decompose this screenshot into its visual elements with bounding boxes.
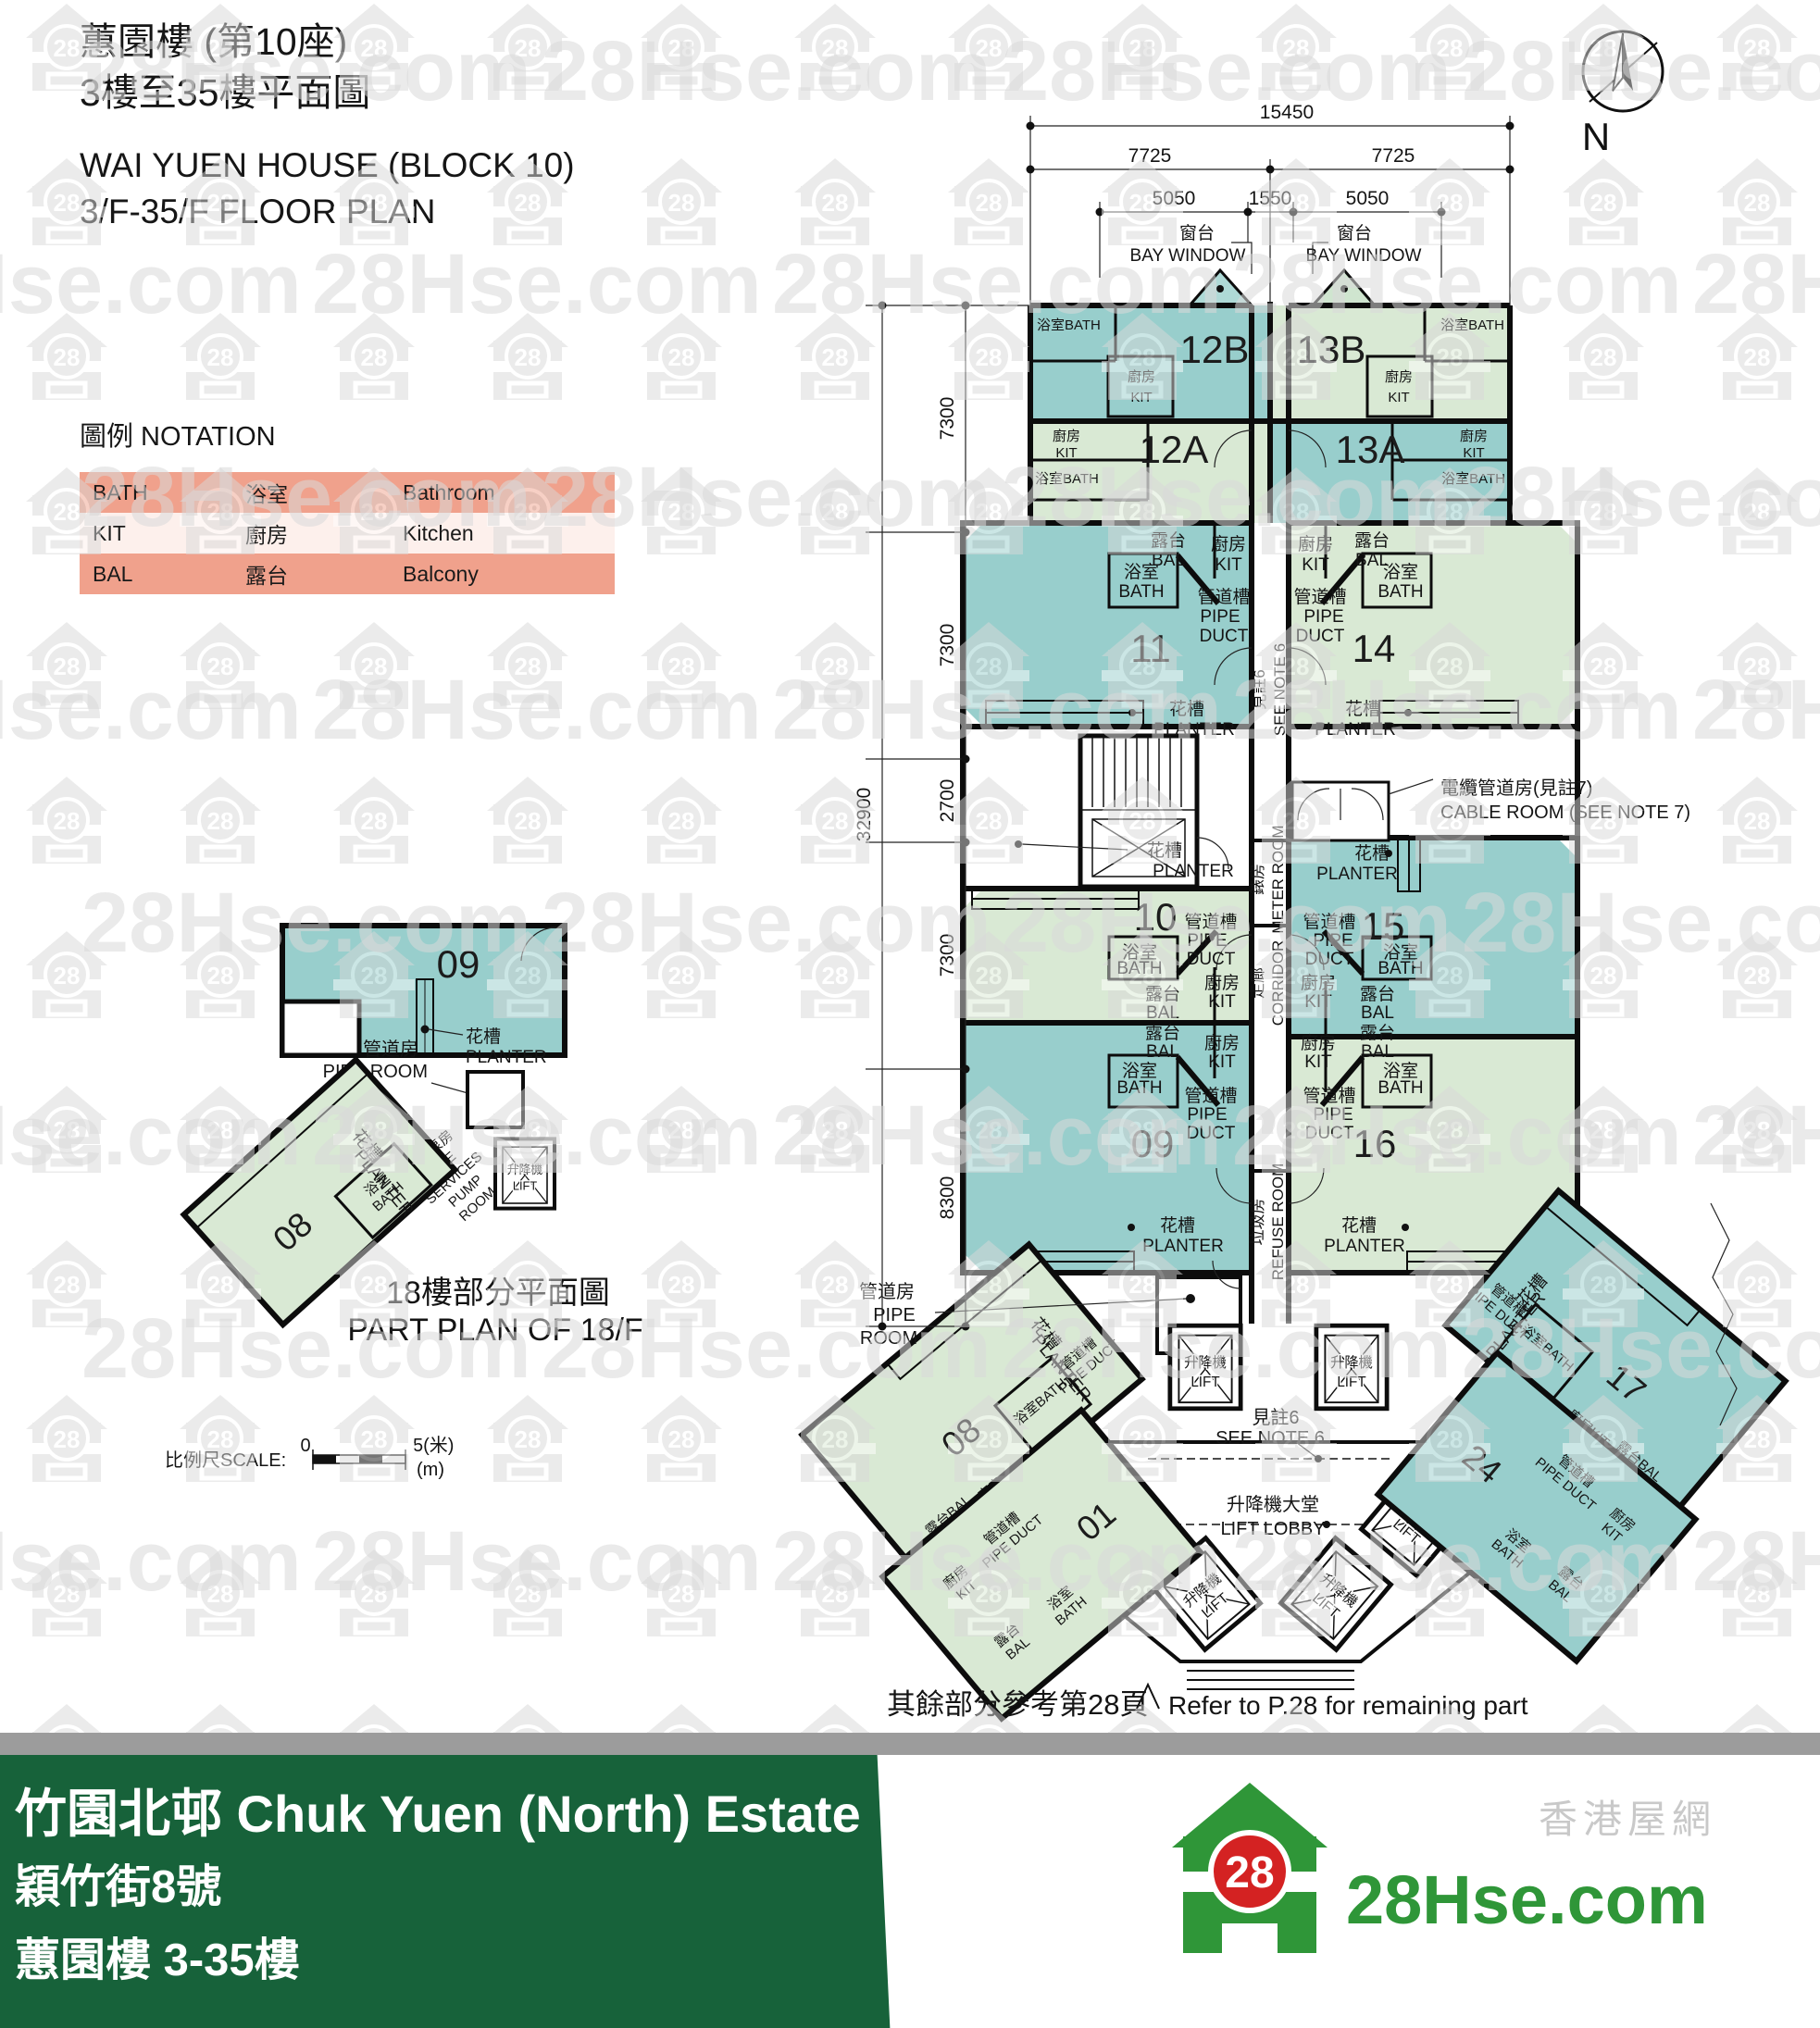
corridor-label: 走廊 — [1249, 967, 1266, 999]
pipe-duct-label: 管道槽 — [1303, 1086, 1355, 1106]
unit-11-label: 11 — [1130, 627, 1171, 670]
unit-12b-label: 12B — [1180, 328, 1250, 371]
notation-zh: 露台 — [245, 558, 403, 590]
notation-code: BATH — [93, 480, 245, 505]
scale-five: 5(米) — [413, 1435, 454, 1456]
kit-label: KIT — [1130, 390, 1152, 405]
unit-10-label: 10 — [1134, 895, 1178, 939]
subtitle-zh: 3樓至35樓平面圖 — [80, 68, 575, 118]
bath-label: 浴室BATH — [1037, 317, 1101, 333]
kit-label: KIT — [1215, 555, 1242, 575]
kit-label: KIT — [1304, 1052, 1332, 1072]
bay-window-label: BAY WINDOW — [1306, 246, 1422, 266]
kit-label: 廚房 — [1128, 368, 1155, 385]
pipe-duct-label: DUCT — [1305, 1124, 1354, 1143]
bath-label: 浴室BATH — [1440, 317, 1504, 333]
planter-label: PLANTER — [1142, 1237, 1224, 1256]
pipe-duct-label: PIPE — [1313, 931, 1353, 951]
notation-row-kit: KIT 廚房 Kitchen — [80, 513, 615, 554]
bath-label: BATH — [1377, 1078, 1423, 1098]
brand-logo: 28 28Hse.com 香港屋網 — [1168, 1779, 1798, 2001]
bal-label: BAL — [1361, 1003, 1394, 1023]
bay-window-labels: 窗台 BAY WINDOW 窗台 BAY WINDOW — [1130, 223, 1422, 274]
planter-label: 花槽 — [1345, 699, 1380, 719]
dim-7300: 7300 — [937, 624, 958, 667]
cable-room-label: 電纜管道房(見註7) — [1440, 778, 1592, 799]
notation-en: Balcony — [403, 562, 615, 587]
scale-label: 比例尺SCALE: — [165, 1449, 286, 1471]
bath-label: 浴室BATH — [1035, 471, 1099, 487]
bal-label: 露台 — [1145, 984, 1180, 1004]
dim-5050: 5050 — [1153, 188, 1196, 209]
refuse-room-label: REFUSE ROOM — [1269, 1163, 1287, 1281]
notation-zh: 浴室 — [245, 477, 403, 508]
kit-label: 廚房 — [1301, 972, 1336, 993]
footer-divider — [0, 1733, 1820, 1755]
pipe-duct-label: DUCT — [1187, 950, 1236, 969]
part-unit-09-label: 09 — [437, 942, 480, 986]
pipe-duct-label: DUCT — [1296, 627, 1345, 646]
pipe-duct-label: 管道槽 — [1184, 1086, 1237, 1106]
kit-label: 廚房 — [1053, 428, 1080, 444]
kit-label: 廚房 — [1385, 368, 1413, 385]
floor-plan-page: 升降機 LIFT 28 — [0, 0, 1820, 2028]
dim-32900: 32900 — [854, 788, 875, 841]
planter-label: 花槽 — [1341, 1215, 1377, 1236]
planter-label: 花槽 — [1354, 843, 1390, 864]
part-plan-caption-en: PART PLAN OF 18/F — [347, 1313, 642, 1348]
planter-label: 花槽 — [466, 1026, 501, 1047]
dim-7725: 7725 — [1128, 145, 1172, 167]
see-note6-label: 見註6 — [1252, 1407, 1299, 1428]
bal-label: 露台 — [1354, 530, 1390, 551]
part-pipe-room — [467, 1072, 523, 1127]
kit-label: KIT — [1463, 445, 1484, 461]
pipe-duct-label: 管道槽 — [1293, 587, 1346, 607]
unit-13a-label: 13A — [1336, 428, 1405, 471]
unit-13b-label: 13B — [1297, 328, 1366, 371]
pipe-duct-label: 管道槽 — [1197, 587, 1250, 607]
planter-label: PLANTER — [1316, 865, 1398, 884]
see-note6-label: SEE NOTE 6 — [1271, 643, 1289, 736]
bay-window-label: 窗台 — [1179, 223, 1215, 243]
pipe-duct-label: PIPE — [1303, 607, 1343, 627]
bal-label: BAL — [1361, 1042, 1394, 1062]
pipe-duct-label: DUCT — [1305, 950, 1354, 969]
kit-label: 廚房 — [1211, 533, 1246, 554]
lift-lobby-label: LIFT LOBBY — [1220, 1519, 1325, 1539]
kit-label: KIT — [1388, 390, 1409, 405]
planter-label: PLANTER — [1153, 862, 1234, 881]
corridor-label: CORRIDOR — [1269, 940, 1287, 1026]
see-note6-label: 見註6 — [1251, 669, 1268, 709]
dim-7725: 7725 — [1372, 145, 1415, 167]
dim-8300: 8300 — [937, 1176, 958, 1220]
bay-window-label: 窗台 — [1337, 223, 1372, 243]
planter-label: PLANTER — [1315, 720, 1396, 740]
refer-note-zh: 其餘部分參考第28頁 — [887, 1688, 1148, 1721]
bal-label: BAL — [1146, 1042, 1179, 1062]
dim-2700: 2700 — [937, 779, 958, 823]
bath-label: BATH — [1116, 1078, 1162, 1098]
pipe-duct-label: PIPE — [1313, 1105, 1353, 1125]
pipe-room-label: PIPE — [873, 1305, 916, 1325]
kit-label: KIT — [1208, 1052, 1236, 1072]
unit-14-label: 14 — [1353, 627, 1396, 670]
pipe-room-label: ROOM — [860, 1328, 917, 1349]
kit-label: KIT — [1208, 992, 1236, 1012]
meter-room-label: METER ROOM — [1269, 825, 1287, 933]
notation-code: BAL — [93, 562, 245, 587]
lift-shaft — [1316, 1325, 1387, 1409]
part-plan-18f: 09 花槽 PLANTER 管道房 PIPE ROOM 消防泵房 FIRE SE… — [184, 926, 643, 1348]
lift-shaft — [495, 1138, 555, 1208]
unit-15-label: 15 — [1362, 904, 1405, 948]
planter-label: PLANTER — [466, 1048, 547, 1067]
dim-1550: 1550 — [1249, 188, 1292, 209]
scale-zero: 0 — [300, 1436, 310, 1456]
kit-label: 廚房 — [1204, 972, 1240, 993]
bath-label: BATH — [1116, 959, 1162, 978]
bath-label: 浴室 — [1124, 562, 1159, 582]
pipe-duct-label: 管道槽 — [1303, 912, 1355, 932]
pipe-duct-label: PIPE — [1187, 1105, 1227, 1125]
scale-bar: 比例尺SCALE: 0 5(米) (m) — [165, 1435, 454, 1480]
kit-label: KIT — [1302, 555, 1329, 575]
notation-zh: 廚房 — [245, 517, 403, 549]
part-plan-caption-zh: 18樓部分平面圖 — [386, 1275, 610, 1311]
notation-row-bal: BAL 露台 Balcony — [80, 554, 615, 594]
dim-7300: 7300 — [937, 397, 958, 441]
refer-note-en: Refer to P.28 for remaining part — [1168, 1691, 1528, 1720]
notation-code: KIT — [93, 521, 245, 546]
planter-label: PLANTER — [1324, 1237, 1405, 1256]
pipe-duct-label: 管道槽 — [1184, 912, 1237, 932]
notation-row-bath: BATH 浴室 Bathroom — [80, 472, 615, 513]
north-compass-icon: N — [1582, 31, 1663, 158]
notation-heading: 圖例 NOTATION — [80, 415, 615, 454]
planter-label: 花槽 — [1169, 699, 1204, 719]
unit-09-label: 09 — [1131, 1122, 1175, 1165]
notation-legend: 圖例 NOTATION BATH 浴室 Bathroom KIT 廚房 Kitc… — [80, 415, 615, 594]
bath-label: BATH — [1377, 582, 1423, 602]
title-zh: 蕙園樓 (第10座) — [80, 17, 575, 68]
title-en: WAI YUEN HOUSE (BLOCK 10) — [80, 143, 575, 189]
pipe-room-label: 管道房 — [859, 1281, 915, 1302]
unit-12a-label: 12A — [1140, 428, 1209, 471]
planter-label: 花槽 — [1147, 840, 1182, 861]
core-labels: 見註6 SEE NOTE 6 錶房 METER ROOM 走廊 CORRIDOR… — [1249, 643, 1289, 1280]
dim-5050: 5050 — [1346, 188, 1390, 209]
bal-label: 露台 — [1360, 984, 1395, 1004]
north-label: N — [1582, 115, 1610, 158]
refuse-room-label: 垃圾房 — [1249, 1199, 1266, 1246]
kit-label: KIT — [1055, 445, 1077, 461]
logo-house-icon: 28 — [1168, 1779, 1331, 1957]
bath-label: BATH — [1377, 959, 1423, 978]
bath-label: BATH — [1118, 582, 1164, 602]
bal-label: 露台 — [1360, 1023, 1395, 1043]
logo-tagline: 香港屋網 — [1539, 1788, 1716, 1845]
unit-16-label: 16 — [1353, 1122, 1397, 1165]
kit-label: 廚房 — [1301, 1032, 1336, 1053]
kit-label: 廚房 — [1204, 1032, 1240, 1053]
scale-m: (m) — [417, 1460, 444, 1480]
pipe-duct-label: PIPE — [1200, 607, 1240, 627]
bay-window-label: BAY WINDOW — [1130, 246, 1246, 266]
logo-badge: 28 — [1225, 1848, 1274, 1897]
meter-room-label: 錶房 — [1249, 864, 1266, 895]
dim-7300: 7300 — [937, 934, 958, 977]
notation-en: Kitchen — [403, 521, 615, 546]
logo-brand-text: 28Hse.com — [1346, 1860, 1708, 1939]
kit-label: 廚房 — [1298, 533, 1333, 554]
plan-header: 蕙園樓 (第10座) 3樓至35樓平面圖 WAI YUEN HOUSE (BLO… — [80, 17, 575, 235]
pipe-room-label: 管道房 — [363, 1039, 418, 1060]
planter-label: PLANTER — [1153, 720, 1235, 740]
bal-label: 露台 — [1151, 530, 1186, 551]
subtitle-en: 3/F-35/F FLOOR PLAN — [80, 189, 575, 235]
pipe-duct-label: DUCT — [1200, 627, 1249, 646]
kit-label: KIT — [1304, 992, 1332, 1012]
bath-label: 浴室BATH — [1441, 471, 1505, 487]
bal-label: 露台 — [1145, 1023, 1180, 1043]
lift-lobby-label: 升降機大堂 — [1227, 1494, 1319, 1515]
bath-label: 浴室 — [1383, 562, 1418, 582]
floor-plan-drawing: 升降機 LIFT 28 — [0, 0, 1820, 2028]
kit-label: 廚房 — [1460, 428, 1488, 444]
bal-label: BAL — [1146, 1003, 1179, 1023]
notation-en: Bathroom — [403, 480, 615, 505]
dim-15450: 15450 — [1260, 102, 1314, 123]
planter-label: 花槽 — [1160, 1215, 1195, 1236]
see-note6-label: SEE NOTE 6 — [1215, 1428, 1325, 1449]
pipe-duct-label: DUCT — [1187, 1124, 1236, 1143]
pipe-duct-label: PIPE — [1187, 931, 1227, 951]
cable-room-label: CABLE ROOM (SEE NOTE 7) — [1440, 802, 1690, 823]
lift-shaft — [1170, 1325, 1240, 1409]
